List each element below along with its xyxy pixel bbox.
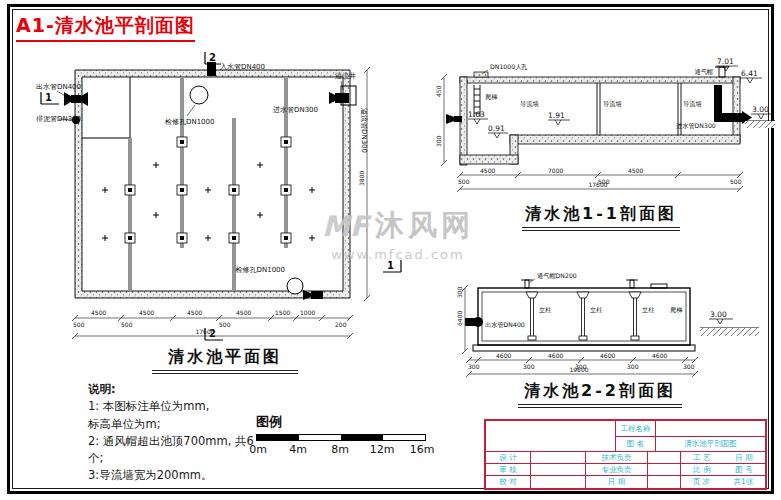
dim-label: 500 <box>121 321 133 328</box>
note-line: 标高单位为m; <box>88 416 266 433</box>
label-manhole-top: 检修孔DN1000 <box>165 118 214 126</box>
dim-label: 300 <box>435 135 442 147</box>
dim-side: 3800 <box>358 171 365 186</box>
titleblock-row-label: 审 核 <box>486 464 531 476</box>
page-title: A1-清水池平剖面图 <box>16 13 195 42</box>
titleblock-right-label: 共1张 <box>734 477 754 487</box>
dim-label: 300 <box>683 363 695 370</box>
dim-label: 500 <box>730 178 742 185</box>
label-outlet-pipe: 出水管DN400 <box>36 83 81 91</box>
s1-dimensions: 450 300 4500 7000 4500 500 500 500 17600 <box>435 74 743 192</box>
section-marker-1-left: 1 <box>45 92 52 103</box>
section-1-1-drawing: 1.63 0.91 1.91 7.01 6.41 3.00 DN1000人孔 爬… <box>430 55 775 205</box>
dim-label: 300 <box>456 286 463 298</box>
label-manhole-bottom: 检修孔DN1000 <box>236 266 285 274</box>
s2-ground-right <box>700 328 759 336</box>
s2-labels: 通气帽DN200 出水管DN400 立柱 立柱 立柱 爬梯 <box>485 272 682 329</box>
dim-label: 7000 <box>548 167 563 174</box>
dim-label: 4500 <box>480 167 495 174</box>
dim-label: 500 <box>73 321 85 328</box>
dim-label: 200 <box>335 321 347 328</box>
note-line: 个; <box>88 450 266 467</box>
titleblock-row-label: 技术负责 <box>586 452 648 464</box>
titleblock-blank <box>531 464 586 476</box>
section-marker-2-top: 2 <box>209 52 216 63</box>
label-s1-manhole: DN1000人孔 <box>490 63 528 71</box>
s2-roof-vents <box>521 280 667 288</box>
dim-label: 4500 <box>187 309 202 316</box>
title-block: 工程名称 图 名 清水池平剖面图 设 计 技术负责 工 艺 日 期 审 核 专业… <box>484 419 767 490</box>
elev-701: 7.01 <box>717 57 734 66</box>
label-s1-inlet: 进水管DN300 <box>676 122 716 130</box>
section-marker-1-right: 1 <box>387 260 394 271</box>
plan-view-drawing: 出水管DN400 排泥管DN300 检修孔DN1000 入水管DN400 溢流井… <box>35 50 405 355</box>
titleblock-blank <box>531 476 586 488</box>
section-1-1-caption: 清水池1-1剖面图 <box>522 204 680 228</box>
dim-label: 4500 <box>139 309 154 316</box>
label-overflow-well: 溢流井 <box>335 72 356 80</box>
label-s2-outlet: 出水管DN400 <box>485 321 525 329</box>
label-s1-vent: 通气帽 <box>694 68 713 76</box>
label-s2-ladder: 爬梯 <box>670 306 682 313</box>
dim-label: 4500 <box>236 309 251 316</box>
titleblock-row-label: 日 期 <box>586 476 648 488</box>
label-s1-ladder: 爬梯 <box>485 93 497 100</box>
s2-elevation: 3.00 <box>709 310 733 324</box>
plan-tank-walls <box>75 70 350 298</box>
scale-bar: 图例 0m 4m 8m 12m 16m <box>256 413 436 457</box>
dim-label: 4500 <box>628 167 643 174</box>
s1-slab-manhole <box>474 72 488 77</box>
titleblock-blank <box>648 476 681 488</box>
plan-cross-marks <box>102 162 315 241</box>
note-line: 3:导流墙宽为200mm。 <box>88 467 266 484</box>
label-inlet-pipe-top: 入水管DN400 <box>220 63 265 71</box>
titleblock-right-label: 比 例 <box>693 465 710 475</box>
titleblock-right-label: 日 期 <box>735 453 752 463</box>
dim-label: 500 <box>458 178 470 185</box>
label-s1-wall3: 导流墙 <box>683 100 702 108</box>
dim-label: 300 <box>468 363 480 370</box>
titleblock-row-label: 设 计 <box>486 452 531 464</box>
titleblock-name-label: 图 名 <box>616 437 656 452</box>
label-s2-col1: 立柱 <box>539 306 552 313</box>
scale-tick: 12m <box>370 443 395 456</box>
section-2-2-drawing: 3.00 通气帽DN200 出水管DN400 立柱 立柱 立柱 爬梯 300 6… <box>455 258 775 380</box>
plan-guide-walls <box>130 77 286 291</box>
elev-163: 1.63 <box>468 110 485 119</box>
label-s2-vent: 通气帽DN200 <box>537 272 577 280</box>
titleblock-company-cell <box>486 421 616 452</box>
dim-label: 4600 <box>652 352 667 359</box>
titleblock-project-label: 工程名称 <box>616 421 656 437</box>
note-line: 2: 通风帽超出池顶700mm, 共6 <box>88 433 266 450</box>
dim-label: 4500 <box>91 309 106 316</box>
elev-300: 3.00 <box>752 105 769 114</box>
dim-label: 1000 <box>300 309 315 316</box>
titleblock-right-label: 工 艺 <box>693 453 710 463</box>
scale-tick: 0m <box>249 443 267 456</box>
label-s2-col2: 立柱 <box>590 306 603 313</box>
dim-label: 4600 <box>600 352 615 359</box>
label-s1-wall1: 导流墙 <box>520 100 539 108</box>
dim-label: 300 <box>627 363 639 370</box>
notes-heading: 说明: <box>88 381 266 398</box>
titleblock-right-label: 页 次 <box>693 477 710 487</box>
titleblock-blank <box>648 452 681 464</box>
titleblock-project-value <box>656 421 765 437</box>
scale-tick: 16m <box>410 443 435 456</box>
titleblock-blank <box>648 464 681 476</box>
elev-191: 1.91 <box>548 111 565 120</box>
label-inlet-pipe-right: 进水管DN300 <box>273 106 318 114</box>
dim-label: 1500 <box>275 309 290 316</box>
dim-label: 500 <box>219 321 231 328</box>
titleblock-row-label: 专业负责 <box>586 464 648 476</box>
titleblock-row-right: 页 次 共1张 <box>681 476 765 488</box>
s1-ground-right <box>745 121 775 128</box>
elev-641: 6.41 <box>741 69 758 78</box>
cad-sheet: A1-清水池平剖面图 <box>0 0 781 500</box>
titleblock-row-right: 工 艺 日 期 <box>681 452 765 464</box>
dim-label: 6400 <box>456 311 463 326</box>
dim-label: 4600 <box>496 352 511 359</box>
notes-block: 说明: 1: 本图标注单位为mm, 标高单位为m; 2: 通风帽超出池顶700m… <box>88 381 266 485</box>
s2-dimensions: 300 6400 4600 4600 4600 4600 300 300 300… <box>456 285 698 377</box>
dim-total: 17600 <box>588 181 607 188</box>
dim-label: 300 <box>523 363 535 370</box>
dim-label: 450 <box>435 85 442 97</box>
note-line: 1: 本图标注单位为mm, <box>88 398 266 415</box>
elev-s2-300: 3.00 <box>710 310 727 319</box>
dim-total: 19600 <box>569 366 588 373</box>
plan-caption: 清水池平面图 <box>152 347 298 371</box>
titleblock-right-label: 图 号 <box>735 465 752 475</box>
scale-tick: 4m <box>289 443 307 456</box>
titleblock-drawing-name: 清水池平剖面图 <box>656 437 765 452</box>
scale-bar-strip <box>256 434 426 441</box>
dim-label: 4600 <box>548 352 563 359</box>
s2-columns <box>526 292 641 340</box>
plan-manhole-top <box>190 86 208 104</box>
s1-partitions <box>597 83 681 135</box>
elev-091: 0.91 <box>488 124 505 133</box>
plan-pipe-fittings <box>64 62 356 300</box>
scale-bar-legend: 图例 <box>256 413 436 431</box>
s2-outlet-pipe <box>465 317 483 327</box>
titleblock-row-label: 校 对 <box>486 476 531 488</box>
label-s1-wall2: 导流墙 <box>603 100 622 108</box>
label-s2-col3: 立柱 <box>642 306 655 313</box>
titleblock-blank <box>531 452 586 464</box>
label-drain-pipe: 排泥管DN300 <box>36 115 81 123</box>
scale-bar-ticks: 0m 4m 8m 12m 16m <box>256 443 424 457</box>
section-2-2-caption: 清水池2-2剖面图 <box>518 381 682 405</box>
titleblock-row-right: 比 例 图 号 <box>681 464 765 476</box>
dim-total: 17600 <box>195 328 214 335</box>
scale-tick: 8m <box>331 443 349 456</box>
